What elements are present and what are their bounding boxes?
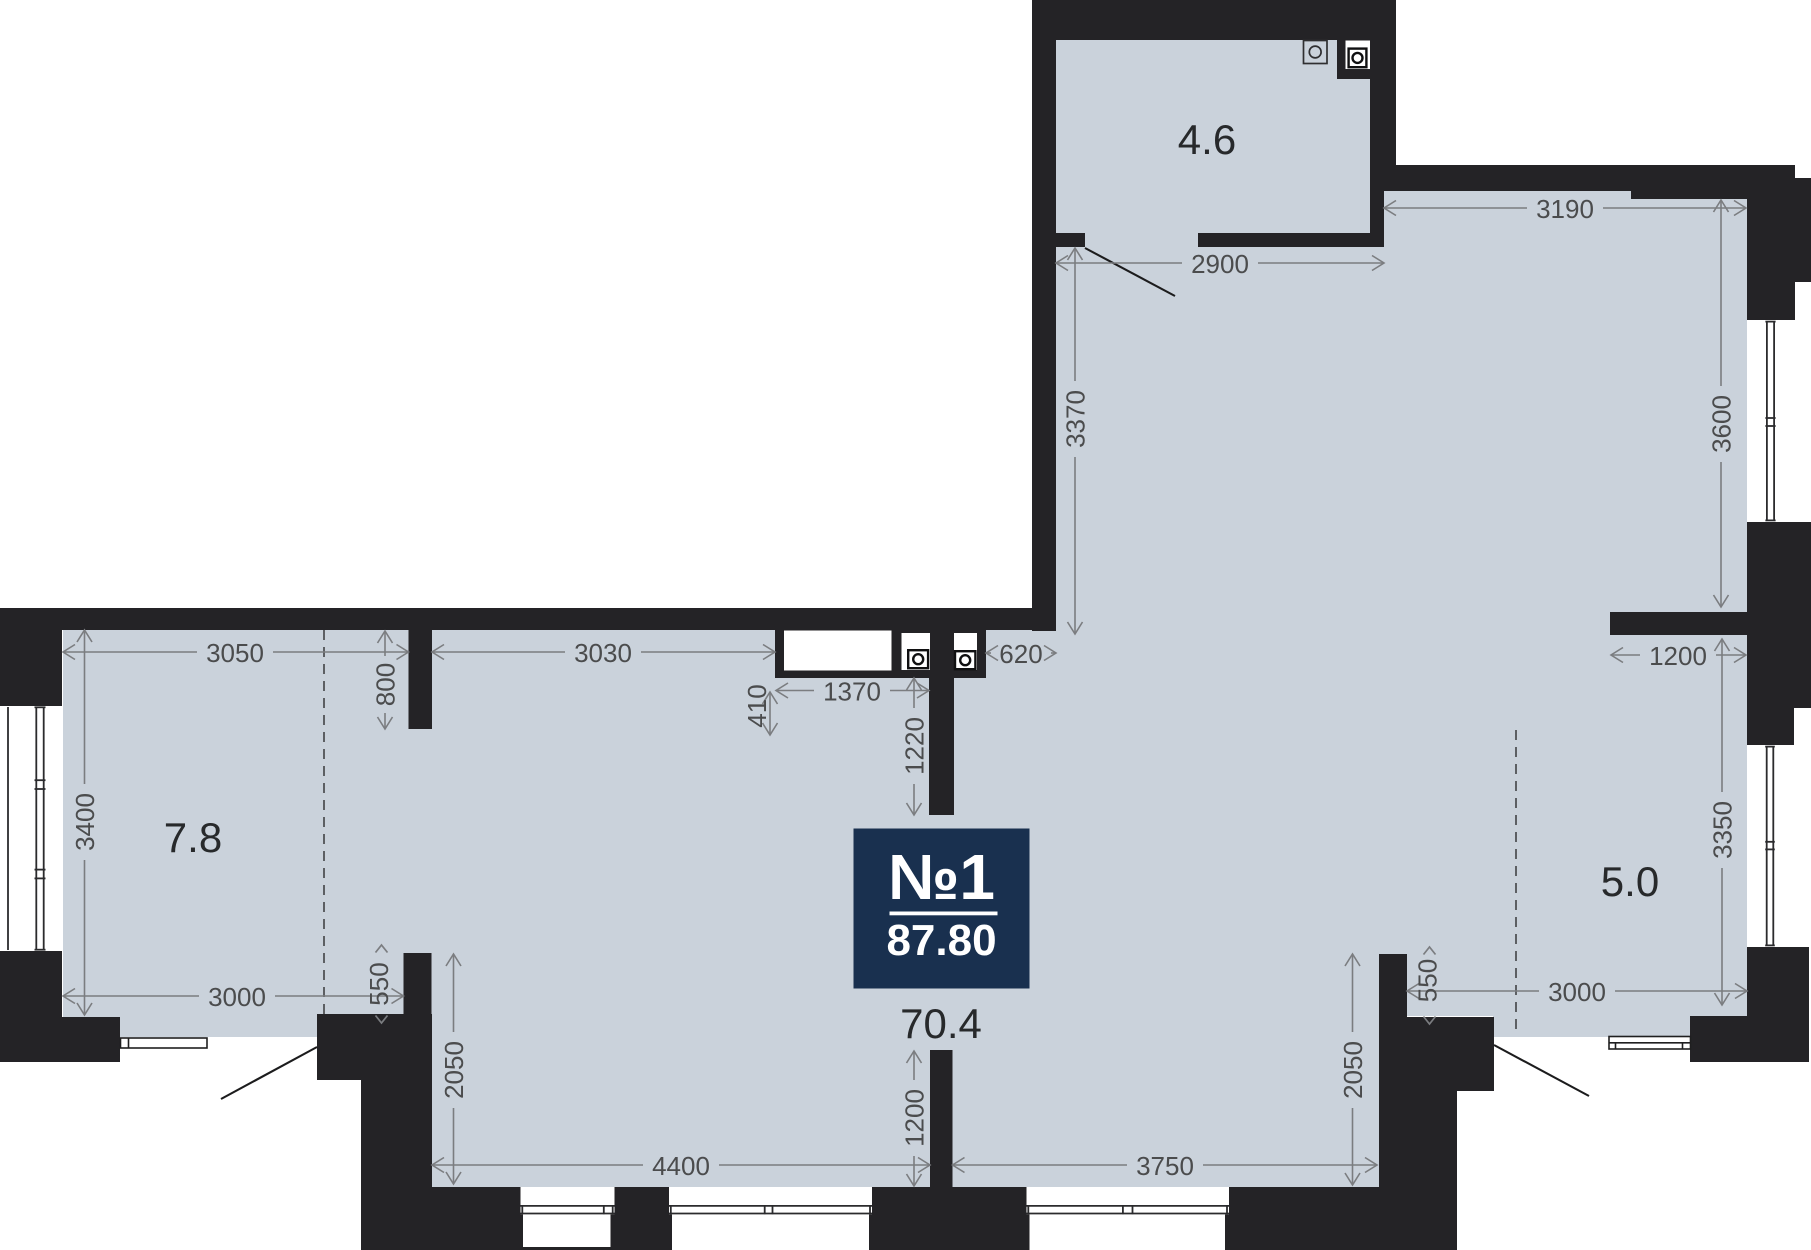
svg-text:2050: 2050 — [1338, 1041, 1368, 1099]
svg-text:3190: 3190 — [1536, 194, 1594, 224]
svg-text:1370: 1370 — [823, 677, 881, 707]
svg-text:4.6: 4.6 — [1178, 116, 1236, 163]
svg-text:2050: 2050 — [439, 1041, 469, 1099]
svg-text:800: 800 — [371, 663, 401, 706]
svg-text:1200: 1200 — [900, 1089, 930, 1147]
svg-text:3400: 3400 — [70, 793, 100, 851]
svg-text:3030: 3030 — [574, 638, 632, 668]
svg-text:1220: 1220 — [900, 717, 930, 775]
svg-text:3750: 3750 — [1136, 1151, 1194, 1181]
svg-text:550: 550 — [364, 962, 394, 1005]
svg-text:3600: 3600 — [1707, 395, 1737, 453]
svg-text:7.8: 7.8 — [164, 814, 222, 861]
svg-text:3350: 3350 — [1708, 801, 1738, 859]
svg-text:3000: 3000 — [208, 982, 266, 1012]
svg-text:87.80: 87.80 — [886, 916, 996, 965]
svg-text:620: 620 — [999, 639, 1042, 669]
svg-text:5.0: 5.0 — [1601, 858, 1659, 905]
svg-text:3370: 3370 — [1061, 390, 1091, 448]
svg-text:410: 410 — [742, 684, 772, 727]
svg-text:3050: 3050 — [206, 638, 264, 668]
svg-text:1200: 1200 — [1649, 641, 1707, 671]
svg-text:550: 550 — [1413, 959, 1443, 1002]
svg-text:3000: 3000 — [1548, 977, 1606, 1007]
svg-text:4400: 4400 — [652, 1151, 710, 1181]
svg-text:2900: 2900 — [1191, 249, 1249, 279]
svg-text:№1: №1 — [888, 841, 995, 913]
svg-text:70.4: 70.4 — [900, 1000, 982, 1047]
